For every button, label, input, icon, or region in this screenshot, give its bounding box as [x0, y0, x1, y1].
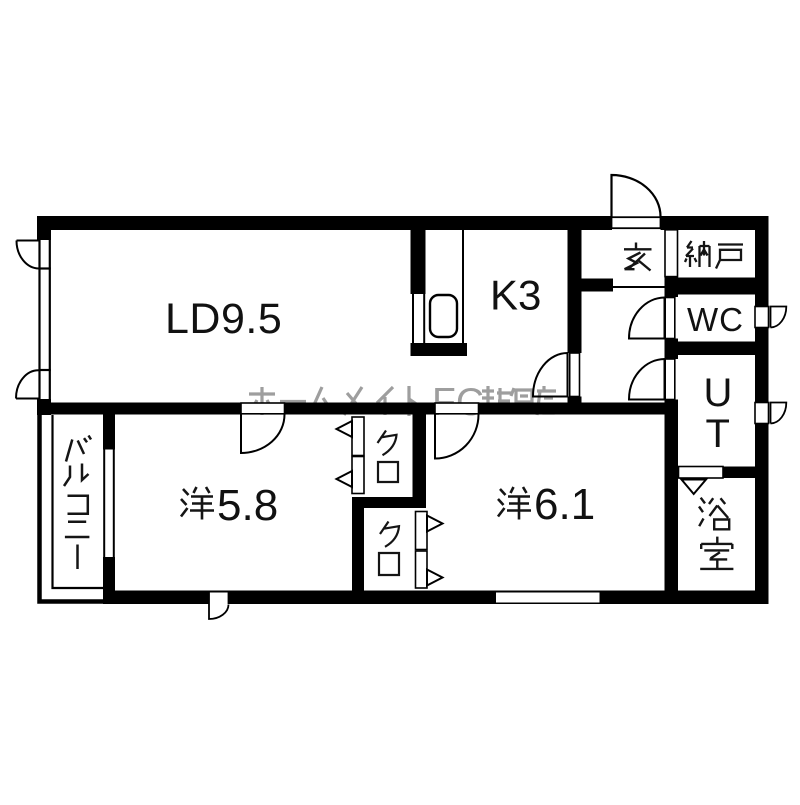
svg-text:T: T — [706, 412, 730, 456]
svg-text:6.1: 6.1 — [534, 480, 595, 529]
svg-text:WC: WC — [687, 301, 744, 338]
svg-text:U: U — [704, 371, 733, 415]
svg-text:LD9.5: LD9.5 — [165, 295, 282, 343]
svg-text:K3: K3 — [490, 272, 541, 319]
svg-text:5.8: 5.8 — [217, 481, 278, 530]
